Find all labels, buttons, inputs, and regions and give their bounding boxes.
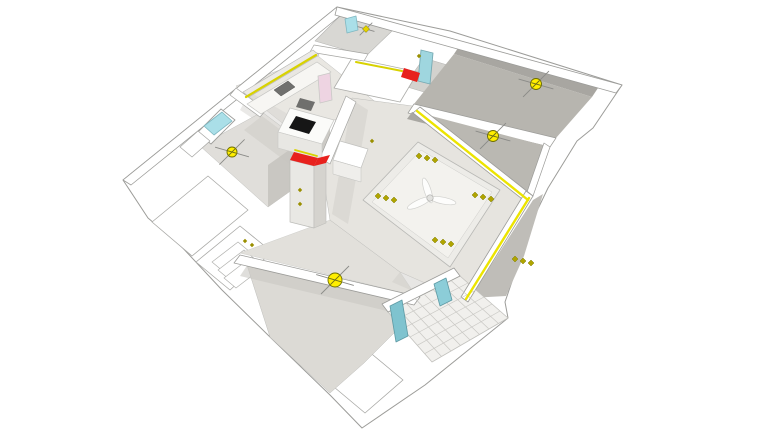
ceiling-fan-hub [427, 195, 433, 201]
floorplan-render-stage [0, 0, 768, 435]
floorplan-3d-viewport[interactable] [0, 0, 768, 435]
top-tip-window [345, 16, 358, 33]
entry-closet-front [290, 160, 314, 228]
entry-closet-side [314, 161, 326, 228]
spotlight-icon [528, 260, 534, 266]
bathroom-pink-door [318, 73, 332, 103]
